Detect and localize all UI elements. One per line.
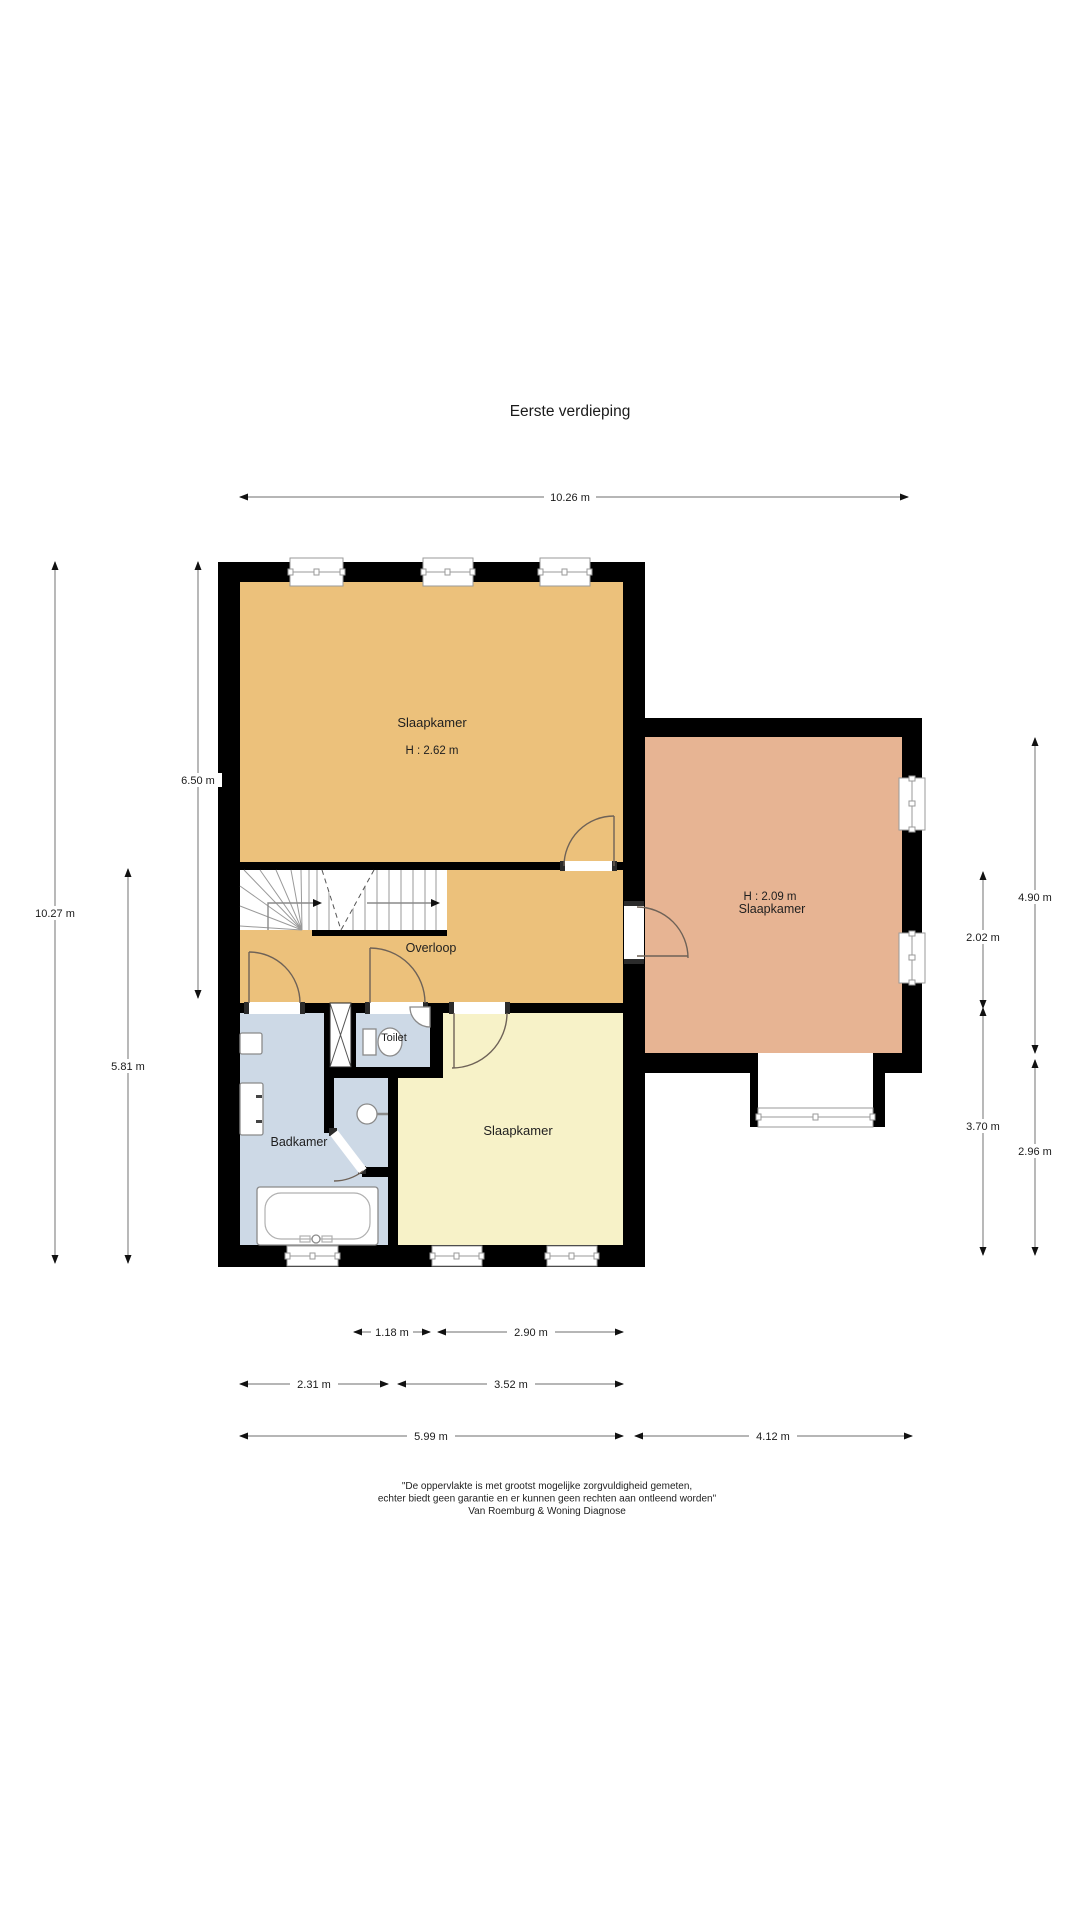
window-bottom-1 [285,1246,340,1266]
dim-right-1-label: 4.90 m [1018,892,1052,904]
wall-extension-bottom-left [645,1053,758,1073]
bathtub [257,1187,378,1245]
disclaimer-line-3: Van Roemburg & Woning Diagnose [468,1506,626,1517]
wall-left [218,562,240,1267]
dim-bottom-4-label: 3.52 m [494,1379,528,1391]
dim-left-1-label: 10.27 m [35,908,75,920]
wall-toilet-right [430,1003,443,1067]
label-bedroom-main-height: H : 2.62 m [405,745,458,757]
wall-stairs-south [312,930,447,936]
label-landing: Overloop [406,941,457,955]
wall-extension-right [902,718,922,1073]
wall-shaft-left [324,1003,330,1067]
window-top-1 [288,558,345,586]
disclaimer-line-1: "De oppervlakte is met grootst mogelijke… [402,1481,692,1492]
window-right-2 [899,931,925,985]
label-bedroom-bottom: Slaapkamer [483,1123,553,1138]
disclaimer-line-2: echter biedt geen garantie en er kunnen … [378,1494,717,1505]
dim-bottom-6-label: 4.12 m [756,1431,790,1443]
wall-extension-top [644,718,922,737]
stairs [240,870,447,930]
label-toilet: Toilet [381,1032,407,1044]
window-dormer [756,1108,875,1127]
dim-bottom-2-label: 2.90 m [514,1327,548,1339]
wall-bedroom-bottom-left [388,1078,398,1247]
window-right-1 [899,776,925,832]
floorplan-svg: Slaapkamer H : 2.62 m H : 2.09 m Slaapka… [0,0,1080,1920]
dim-bottom-3-label: 2.31 m [297,1379,331,1391]
dim-bottom-1-label: 1.18 m [375,1327,409,1339]
bathroom-sink [240,1033,262,1054]
dim-top-label: 10.26 m [550,492,590,504]
window-bottom-2 [430,1246,484,1266]
floorplan-page: Slaapkamer H : 2.62 m H : 2.09 m Slaapka… [0,0,1080,1920]
duct-shaft [330,1003,351,1067]
dim-bottom-5-label: 5.99 m [414,1431,448,1443]
window-top-2 [421,558,475,586]
label-bathroom: Badkamer [271,1135,328,1149]
wall-bathroom-mid [324,1078,334,1133]
page-title: Eerste verdieping [510,403,631,420]
bathroom-radiator [240,1083,263,1135]
window-bottom-3 [545,1246,599,1266]
disclaimer: "De oppervlakte is met grootst mogelijke… [378,1481,717,1517]
wall-bathroom-stub [362,1167,398,1177]
wall-shaft-right [351,1003,356,1067]
dim-left-2-label: 5.81 m [111,1061,145,1073]
dim-right-3-label: 3.70 m [966,1121,1000,1133]
label-bedroom-main: Slaapkamer [397,715,467,730]
dim-right-2-label: 2.02 m [966,932,1000,944]
dim-right-4-label: 2.96 m [1018,1146,1052,1158]
window-top-3 [538,558,592,586]
wall-under-toilet [324,1067,443,1078]
label-bedroom-right: Slaapkamer [739,902,806,916]
dim-left-3-label: 6.50 m [181,775,215,787]
